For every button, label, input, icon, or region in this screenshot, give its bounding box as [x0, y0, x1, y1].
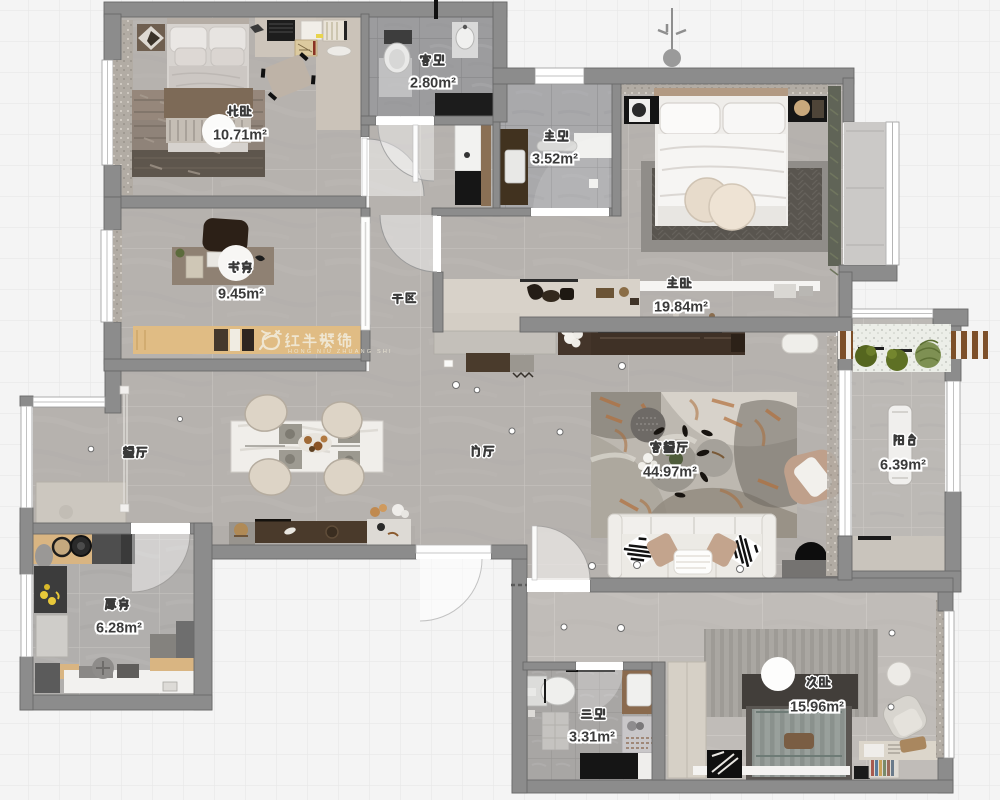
svg-text:6.39m²: 6.39m² — [880, 458, 926, 474]
svg-text:9.45m²: 9.45m² — [218, 287, 264, 303]
svg-text:6.28m²: 6.28m² — [96, 621, 142, 637]
svg-text:19.84m²: 19.84m² — [654, 300, 708, 316]
svg-text:3.31m²: 3.31m² — [569, 730, 615, 746]
svg-text:HONG NIU ZHUANG SHI: HONG NIU ZHUANG SHI — [288, 349, 393, 355]
svg-text:15.96m²: 15.96m² — [790, 700, 844, 716]
svg-text:10.71m²: 10.71m² — [213, 128, 267, 144]
svg-text:44.97m²: 44.97m² — [643, 465, 697, 481]
svg-text:3.52m²: 3.52m² — [532, 152, 578, 168]
svg-text:2.80m²: 2.80m² — [410, 76, 456, 92]
